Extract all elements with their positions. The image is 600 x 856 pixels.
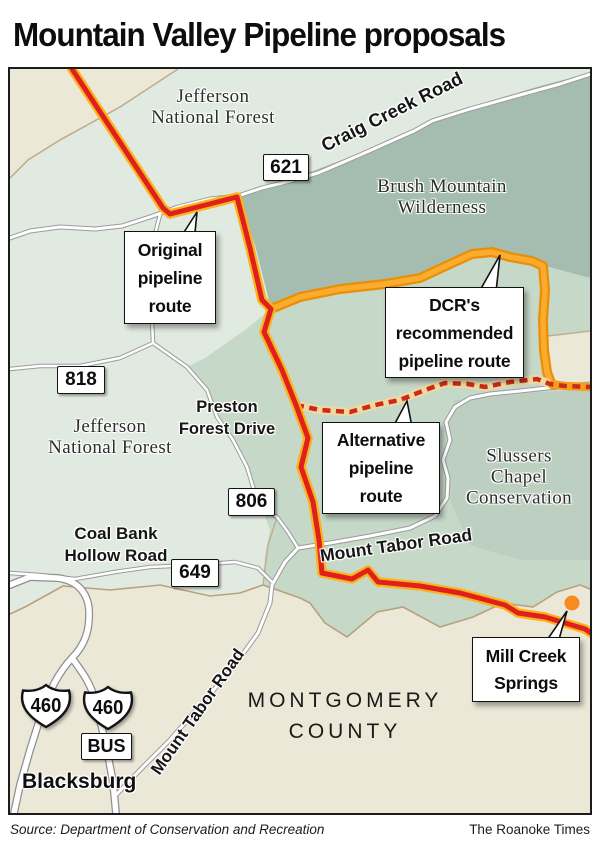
news-map-graphic: Mountain Valley Pipeline proposals	[0, 0, 600, 856]
label-coal-bank-hollow-road: Coal Bank Hollow Road	[65, 523, 168, 567]
route-shield-460-bus: BUS	[81, 733, 132, 760]
label-jefferson-national-forest-north: Jefferson National Forest	[151, 86, 275, 128]
page-title: Mountain Valley Pipeline proposals	[13, 16, 562, 54]
route-shield-621: 621	[263, 154, 309, 181]
us-shield-number: 460	[21, 695, 71, 718]
publisher-credit: The Roanoke Times	[469, 822, 590, 837]
us-shield-number: 460	[83, 697, 133, 720]
label-blacksburg: Blacksburg	[22, 770, 136, 794]
route-shield-806: 806	[228, 488, 275, 516]
route-shield-818: 818	[57, 366, 105, 394]
mill-creek-springs-dot	[565, 596, 580, 611]
callout-original-pipeline-route: Original pipeline route	[124, 231, 216, 324]
label-preston-forest-drive: Preston Forest Drive	[179, 396, 275, 440]
us-route-shield-460-right: 460	[81, 684, 135, 732]
label-montgomery-county: MONTGOMERY COUNTY	[248, 685, 443, 747]
route-alternative-casing-right	[550, 384, 590, 387]
callout-mill-creek-springs: Mill Creek Springs	[472, 637, 580, 702]
callout-alternative-pipeline-route: Alternative pipeline route	[322, 422, 440, 514]
label-brush-mountain-wilderness: Brush Mountain Wilderness	[377, 176, 507, 218]
source-credit: Source: Department of Conservation and R…	[10, 822, 324, 837]
callout-dcr-recommended-route: DCR's recommended pipeline route	[385, 287, 524, 378]
route-shield-649: 649	[171, 559, 219, 587]
us-route-shield-460-left: 460	[19, 682, 73, 730]
label-jefferson-national-forest-west: Jefferson National Forest	[48, 416, 172, 458]
label-slussers-chapel-conservation: Slussers Chapel Conservation	[466, 446, 572, 509]
